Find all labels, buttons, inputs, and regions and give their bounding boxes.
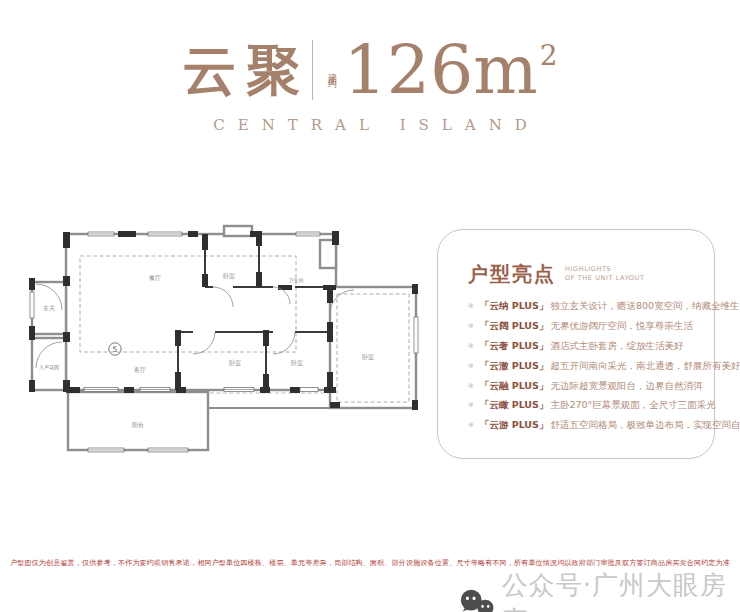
area-value: 126m2 <box>343 36 557 104</box>
highlight-item: ※「云奢 PLUS」酒店式主卧套房，绽放生活美好 <box>468 340 688 351</box>
area-label: 建面约 <box>325 44 338 96</box>
highlight-name: 「云澈 PLUS」 <box>480 360 549 371</box>
disclaimer-text: 户型图仅为创意鉴赏，仅供参考，不作为要约或销售承诺，相同户型单位因楼栋、楼层、单… <box>0 558 740 568</box>
bullet-icon: ※ <box>468 322 474 330</box>
highlight-item: ※「云纳 PLUS」独立玄关设计，赠送800宽空间，纳藏全维生活 <box>468 300 688 311</box>
title-divider <box>312 40 313 100</box>
bullet-icon: ※ <box>468 342 474 350</box>
highlight-desc: 无界优游阔厅空间，悦享尊崇生活 <box>550 320 693 331</box>
highlight-name: 「云融 PLUS」 <box>480 380 549 391</box>
highlight-name: 「云游 PLUS」 <box>480 419 549 430</box>
highlight-desc: 独立玄关设计，赠送800宽空间，纳藏全维生活 <box>550 300 740 311</box>
highlight-item: ※「云瞰 PLUS」主卧270°巨幕景观面，全尺寸三面采光 <box>468 399 688 410</box>
wechat-icon <box>458 587 496 612</box>
card-title: 户型亮点 <box>468 264 556 284</box>
highlight-list: ※「云纳 PLUS」独立玄关设计，赠送800宽空间，纳藏全维生活 ※「云阔 PL… <box>468 300 688 431</box>
area-number: 126m <box>343 30 537 109</box>
card-subtitle: HIGHLIGHTS OF THE UNIT LAYOUT <box>565 265 645 284</box>
title-row: 云聚 建面约 126m2 <box>182 36 557 104</box>
top-notch <box>224 226 252 236</box>
highlights-card: 户型亮点 HIGHLIGHTS OF THE UNIT LAYOUT ※「云纳 … <box>437 229 715 459</box>
card-subtitle-line1: HIGHLIGHTS <box>565 265 611 273</box>
highlight-item: ※「云阔 PLUS」无界优游阔厅空间，悦享尊崇生活 <box>468 320 688 331</box>
bullet-icon: ※ <box>468 421 474 429</box>
highlight-desc: 无边际超宽景观阳台，边界自然消弭 <box>550 380 702 391</box>
room-label-entry: 玄关 <box>43 304 55 311</box>
room-label-bedroom-1: 卧室 <box>229 359 241 366</box>
bullet-icon: ※ <box>468 382 474 390</box>
bullet-icon: ※ <box>468 302 474 310</box>
header: 云聚 建面约 126m2 CENTRAL ISLAND <box>0 36 740 134</box>
bullet-icon: ※ <box>468 401 474 409</box>
poster-page: 云聚 建面约 126m2 CENTRAL ISLAND <box>0 0 740 612</box>
right-wing-outline <box>330 287 416 408</box>
highlight-desc: 酒店式主卧套房，绽放生活美好 <box>550 340 683 351</box>
room-label-living: 客厅 <box>134 366 146 374</box>
floorplan: 玄关 入户花园 餐厅 客厅 卧室 卫生间 卧室 卧室 卧室 阳台 5 <box>28 222 433 460</box>
main-outline <box>66 234 336 390</box>
unit-number: 5 <box>113 345 118 354</box>
room-label-bedroom-top: 卧室 <box>223 272 235 279</box>
room-label-balcony: 阳台 <box>132 421 144 429</box>
room-label-entry-garden: 入户花园 <box>39 364 59 371</box>
highlight-desc: 主卧270°巨幕景观面，全尺寸三面采光 <box>550 399 715 410</box>
watermark: 公众号·广州大眼房产 <box>458 568 740 612</box>
floorplan-drawing: 玄关 入户花园 餐厅 客厅 卧室 卫生间 卧室 卧室 卧室 阳台 5 <box>28 222 433 460</box>
highlight-desc: 舒适五空间格局，极致单边布局，实现空间自由 <box>550 419 740 430</box>
unit-title: 云聚 <box>182 43 310 97</box>
highlight-item: ※「云澈 PLUS」超五开间南向采光，南北通透，舒展所有美好 <box>468 360 688 371</box>
bullet-icon: ※ <box>468 362 474 370</box>
card-title-row: 户型亮点 HIGHLIGHTS OF THE UNIT LAYOUT <box>468 264 688 284</box>
highlight-desc: 超五开间南向采光，南北通透，舒展所有美好 <box>550 360 740 371</box>
room-label-bathroom: 卫生间 <box>289 277 304 284</box>
highlight-name: 「云瞰 PLUS」 <box>480 399 549 410</box>
highlight-item: ※「云融 PLUS」无边际超宽景观阳台，边界自然消弭 <box>468 380 688 391</box>
room-label-dining: 餐厅 <box>149 274 161 281</box>
highlight-name: 「云奢 PLUS」 <box>480 340 549 351</box>
subtitle-english: CENTRAL ISLAND <box>0 116 740 134</box>
highlight-name: 「云纳 PLUS」 <box>480 300 549 311</box>
watermark-text: 公众号·广州大眼房产 <box>502 568 740 612</box>
room-label-bedroom-right: 卧室 <box>362 353 374 360</box>
highlight-item: ※「云游 PLUS」舒适五空间格局，极致单边布局，实现空间自由 <box>468 419 688 430</box>
area-superscript: 2 <box>540 39 558 72</box>
highlight-name: 「云阔 PLUS」 <box>480 320 549 331</box>
room-label-bedroom-2: 卧室 <box>291 359 303 366</box>
card-subtitle-line2: OF THE UNIT LAYOUT <box>565 274 645 282</box>
